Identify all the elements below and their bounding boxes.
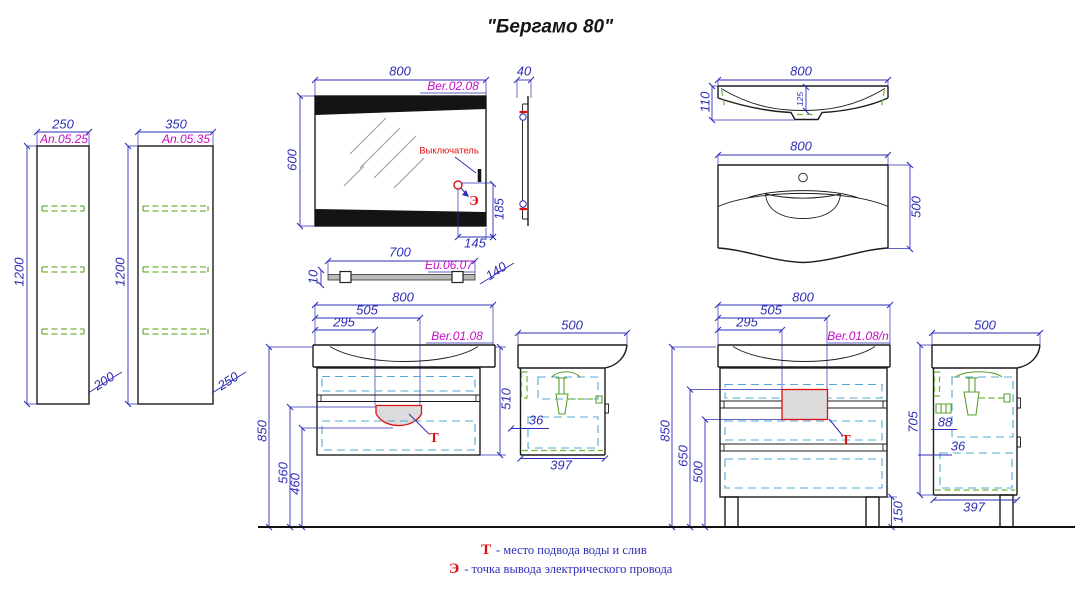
- drawing-linework: [0, 0, 1083, 590]
- article-mirror: Ber.02.08: [427, 80, 479, 92]
- dim-mirror-height: 600: [286, 149, 299, 171]
- legend-water-text: - место подвода воды и слив: [496, 543, 647, 558]
- dim-vanity-wall-side-width: 500: [561, 319, 583, 332]
- dim-vanity-wall-side-36: 36: [529, 414, 543, 427]
- dim-vanity-floor-side-36: 36: [951, 440, 965, 453]
- drawing-title: "Бергамо 80": [487, 18, 613, 37]
- dim-vanity-floor-legs: 150: [892, 501, 905, 523]
- dim-vanity-wall-460: 460: [289, 473, 302, 495]
- article-vanity-floor: Ber.01.08/n: [827, 330, 889, 342]
- article-shelf: Eu.06.07: [425, 259, 473, 271]
- dim-basin-height: 110: [699, 92, 712, 113]
- column-350-drawing: [128, 132, 246, 404]
- article-col-a: An.05.25: [40, 133, 88, 145]
- water-point-symbol-floor: Т: [841, 434, 850, 448]
- dim-vanity-floor-width: 800: [792, 291, 814, 304]
- legend-water: Т - место подвода воды и слив: [481, 542, 647, 559]
- vanity-floor-side-drawing: [918, 333, 1040, 527]
- drawing-canvas: "Бергамо 80" 250 An.05.25 1200 200 350 A…: [0, 0, 1083, 590]
- dim-mirror-145: 145: [464, 237, 486, 250]
- vanity-wall-side-drawing: [511, 333, 627, 459]
- dim-shelf-thickness: 10: [307, 270, 320, 284]
- water-point-symbol-wall: Т: [429, 432, 438, 446]
- dim-mirror-width: 800: [389, 65, 411, 78]
- legend-electric-text: - точка вывода электрического провода: [464, 562, 672, 577]
- switch-label: Выключатель: [419, 146, 479, 156]
- legend-electric: Э - точка вывода электрического провода: [449, 561, 672, 578]
- dim-vanity-floor-side-88: 88: [938, 416, 952, 429]
- dim-basin-profile-width: 800: [790, 65, 812, 78]
- dim-vanity-floor-side-397: 397: [963, 501, 985, 514]
- dim-basin-plan-width: 800: [790, 140, 812, 153]
- electric-point-symbol: Э: [469, 195, 479, 209]
- column-250-drawing: [27, 132, 122, 404]
- dim-vanity-floor-side-width: 500: [974, 319, 996, 332]
- dim-vanity-wall-505: 505: [356, 304, 378, 317]
- dim-vanity-wall-width: 800: [392, 291, 414, 304]
- dim-shelf-width: 700: [389, 246, 411, 259]
- dim-basin-inner-depth: 125: [796, 92, 805, 106]
- washbasin-plan-drawing: [718, 155, 910, 263]
- dim-vanity-wall-side-397: 397: [550, 459, 572, 472]
- dim-basin-plan-depth: 500: [910, 196, 923, 218]
- dim-mirror-185: 185: [493, 198, 506, 220]
- dim-vanity-wall-850: 850: [256, 420, 269, 442]
- legend-electric-symbol: Э: [449, 561, 459, 578]
- dim-vanity-floor-500: 500: [692, 461, 705, 483]
- dim-vanity-wall-510: 510: [500, 388, 513, 410]
- dim-col-a-width: 250: [52, 118, 74, 131]
- dim-mirror-side-depth: 40: [517, 65, 531, 78]
- dim-col-a-height: 1200: [13, 258, 26, 287]
- dim-col-b-height: 1200: [114, 258, 127, 287]
- legend-water-symbol: Т: [481, 542, 491, 559]
- article-vanity-wall: Ber.01.08: [431, 330, 483, 342]
- dim-vanity-floor-850: 850: [659, 420, 672, 442]
- article-col-b: An.05.35: [162, 133, 210, 145]
- dim-vanity-floor-295: 295: [736, 316, 758, 329]
- dim-vanity-wall-295: 295: [333, 316, 355, 329]
- dim-vanity-floor-505: 505: [760, 304, 782, 317]
- dim-vanity-floor-650: 650: [677, 445, 690, 467]
- dim-col-b-width: 350: [165, 118, 187, 131]
- dim-vanity-floor-side-705: 705: [907, 411, 920, 433]
